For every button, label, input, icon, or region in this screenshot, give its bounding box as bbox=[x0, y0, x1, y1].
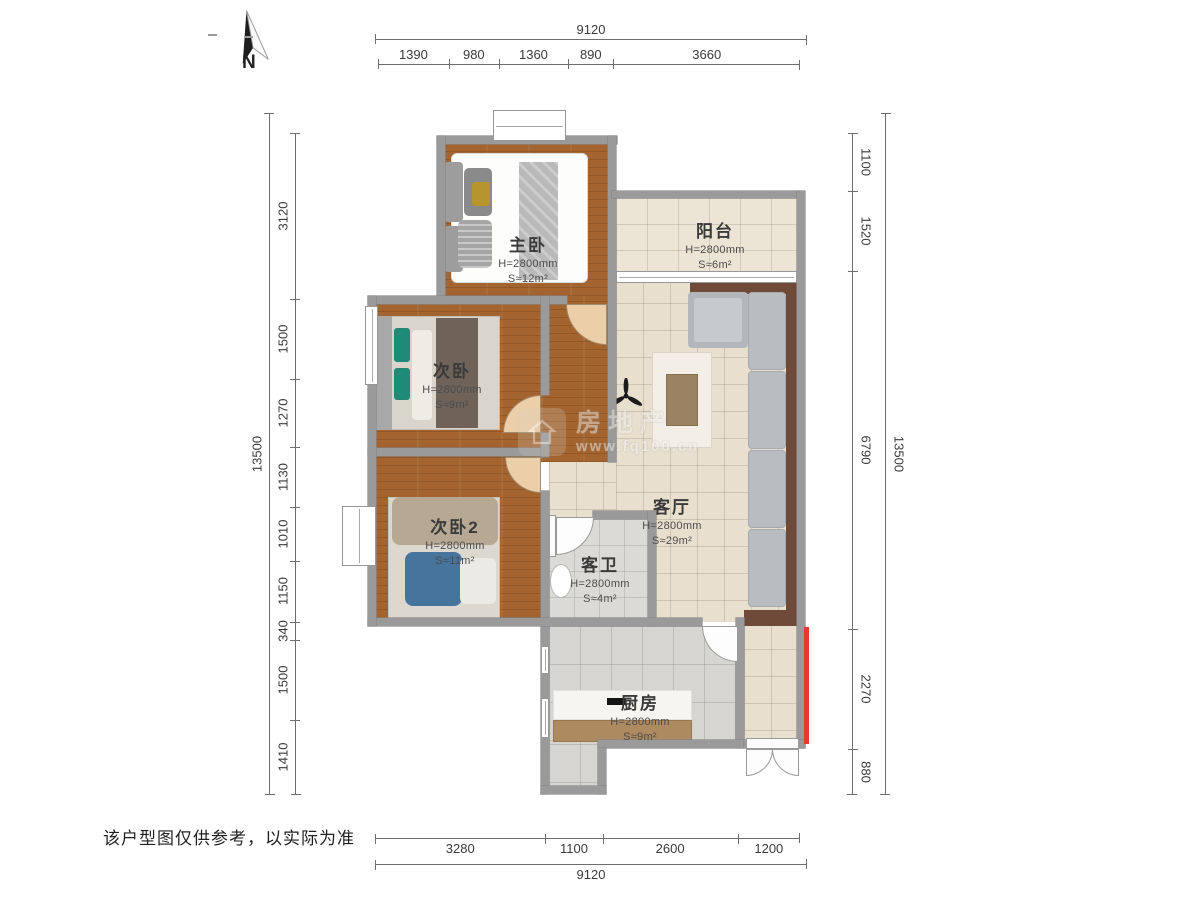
wall-red-accent bbox=[804, 627, 809, 744]
dim-chain-left-outer: 13500 bbox=[244, 113, 270, 795]
dim-label: 9120 bbox=[375, 22, 807, 37]
room-area: S≈4m² bbox=[530, 592, 670, 607]
dim-segment: 340 bbox=[270, 622, 296, 640]
room-label-master: 主卧 H=2800mm S≈12m² bbox=[458, 234, 598, 287]
dim-chain-right-outer: 13500 bbox=[885, 113, 911, 795]
dim-segment: 3280 bbox=[375, 838, 545, 856]
dim-label: 980 bbox=[449, 47, 499, 62]
dim-label: 1520 bbox=[858, 217, 873, 246]
dim-label: 1100 bbox=[858, 148, 873, 176]
dim-label: 1410 bbox=[275, 743, 290, 772]
kitchen-ext-floor bbox=[549, 744, 598, 786]
room-height: H=2800mm bbox=[382, 383, 522, 398]
dim-segment: 1270 bbox=[270, 379, 296, 447]
dim-label: 1130 bbox=[275, 463, 290, 491]
dim-segment: 9120 bbox=[375, 22, 807, 40]
dim-segment: 1500 bbox=[270, 640, 296, 720]
room-label-balcony: 阳台 H=2800mm S≈6m² bbox=[645, 220, 785, 273]
master-pillow-yellow bbox=[472, 182, 490, 206]
dim-segment: 2600 bbox=[603, 838, 738, 856]
room-label-living: 客厅 H=2800mm S≈29m² bbox=[602, 496, 742, 549]
entry-door-frame bbox=[746, 738, 799, 749]
dim-label: 13500 bbox=[891, 436, 906, 472]
master-window bbox=[493, 110, 566, 141]
kitchen-window-2 bbox=[541, 698, 549, 738]
wall-master-left bbox=[437, 136, 445, 304]
north-dash-left bbox=[208, 34, 217, 36]
dim-segment: 13500 bbox=[885, 113, 911, 795]
room-name: 次卧2 bbox=[385, 516, 525, 539]
kitchen-window-1 bbox=[541, 646, 549, 674]
room-height: H=2800mm bbox=[572, 715, 708, 730]
dim-label: 890 bbox=[568, 47, 613, 62]
wall-ext-bottom bbox=[541, 786, 606, 794]
dim-segment: 890 bbox=[568, 47, 613, 65]
room-area: S≈9m² bbox=[382, 398, 522, 413]
sofa-cushion-1 bbox=[748, 292, 786, 370]
entry-door-arc-right bbox=[772, 749, 799, 776]
sofa-chaise-cushion bbox=[694, 298, 742, 342]
bath-door-leaf bbox=[549, 515, 556, 557]
dim-segment: 3120 bbox=[270, 133, 296, 299]
dim-segment: 880 bbox=[852, 749, 878, 795]
room-label-kitchen: 厨房 H=2800mm S≈9m² bbox=[572, 692, 708, 745]
wall-bedroom2-top bbox=[368, 296, 567, 304]
sofa-base-bottom bbox=[744, 610, 798, 626]
dim-chain-top-inner: 139098013608903660 bbox=[378, 47, 800, 65]
dim-label: 9120 bbox=[375, 867, 807, 882]
dim-segment: 1390 bbox=[378, 47, 449, 65]
dim-chain-right-inner: 1100152067902270880 bbox=[852, 133, 878, 795]
dim-label: 1360 bbox=[499, 47, 568, 62]
room-name: 客厅 bbox=[602, 496, 742, 519]
dim-label: 1100 bbox=[545, 841, 602, 856]
room-area: S≈29m² bbox=[602, 534, 742, 549]
dim-segment: 1130 bbox=[270, 447, 296, 507]
dim-label: 3120 bbox=[275, 202, 290, 231]
disclaimer-text: 该户型图仅供参考，以实际为准 bbox=[103, 824, 355, 849]
room-label-bedroom3: 次卧2 H=2800mm S≈11m² bbox=[385, 516, 525, 569]
dim-label: 6790 bbox=[858, 436, 873, 465]
north-label: N bbox=[242, 52, 256, 74]
wall-central-seg3 bbox=[541, 491, 549, 794]
dim-label: 1390 bbox=[378, 47, 449, 62]
room-height: H=2800mm bbox=[530, 577, 670, 592]
wall-balcony-top bbox=[612, 191, 800, 198]
dim-segment: 1100 bbox=[852, 133, 878, 191]
room-area: S≈9m² bbox=[572, 730, 708, 745]
bedroom3-window bbox=[342, 506, 376, 566]
dim-label: 880 bbox=[858, 761, 873, 783]
dim-segment: 980 bbox=[449, 47, 499, 65]
room-area: S≈11m² bbox=[385, 554, 525, 569]
dim-label: 13500 bbox=[249, 436, 264, 472]
north-dash-right bbox=[244, 36, 253, 38]
dim-label: 1270 bbox=[275, 398, 290, 427]
wall-kitchen-top bbox=[368, 618, 702, 626]
dim-segment: 1100 bbox=[545, 838, 602, 856]
dim-segment: 1150 bbox=[270, 561, 296, 622]
room-height: H=2800mm bbox=[458, 257, 598, 272]
wall-central-seg2 bbox=[541, 433, 549, 457]
dim-label: 1500 bbox=[275, 666, 290, 695]
dim-segment: 3660 bbox=[613, 47, 800, 65]
dim-label: 1010 bbox=[275, 519, 290, 548]
entry-floor bbox=[744, 622, 797, 744]
room-area: S≈6m² bbox=[645, 258, 785, 273]
sofa-cushion-2 bbox=[748, 371, 786, 449]
room-height: H=2800mm bbox=[645, 243, 785, 258]
north-arrow: N bbox=[228, 8, 288, 80]
sofa-cushion-3 bbox=[748, 450, 786, 528]
dim-chain-left-inner: 31201500127011301010115034015001410 bbox=[270, 133, 296, 795]
wall-bedroom2-bottom bbox=[368, 448, 543, 456]
dim-segment: 1010 bbox=[270, 507, 296, 561]
room-label-bath: 客卫 H=2800mm S≈4m² bbox=[530, 554, 670, 607]
sofa-cushion-4 bbox=[748, 529, 786, 607]
wall-center-vertical bbox=[608, 136, 616, 462]
dim-chain-bottom-inner: 3280110026001200 bbox=[375, 838, 800, 856]
dim-segment: 6790 bbox=[852, 271, 878, 629]
dim-label: 1200 bbox=[738, 841, 800, 856]
bedroom2-window bbox=[365, 306, 378, 385]
floorplan-canvas: N 9120 139098013608903660 32801100260012… bbox=[0, 0, 1200, 900]
dim-segment: 1410 bbox=[270, 720, 296, 795]
wall-central-seg1 bbox=[541, 296, 549, 395]
dim-segment: 2270 bbox=[852, 629, 878, 749]
dim-segment: 1500 bbox=[270, 299, 296, 379]
room-name: 次卧 bbox=[382, 360, 522, 383]
dim-chain-top-outer: 9120 bbox=[375, 22, 807, 40]
dim-label: 3660 bbox=[613, 47, 800, 62]
master-nightstand-top bbox=[444, 162, 463, 222]
dim-label: 2270 bbox=[858, 674, 873, 703]
room-height: H=2800mm bbox=[385, 539, 525, 554]
room-area: S≈12m² bbox=[458, 272, 598, 287]
room-name: 厨房 bbox=[572, 692, 708, 715]
dim-segment: 1200 bbox=[738, 838, 800, 856]
dim-segment: 13500 bbox=[244, 113, 270, 795]
bedroom2-pillow-teal-1 bbox=[394, 328, 410, 362]
dim-label: 340 bbox=[275, 620, 290, 642]
dim-segment: 9120 bbox=[375, 864, 807, 882]
dim-label: 2600 bbox=[603, 841, 738, 856]
coffee-table bbox=[666, 374, 698, 426]
room-name: 主卧 bbox=[458, 234, 598, 257]
room-height: H=2800mm bbox=[602, 519, 742, 534]
dim-label: 1500 bbox=[275, 325, 290, 354]
room-label-bedroom2: 次卧 H=2800mm S≈9m² bbox=[382, 360, 522, 413]
entry-door-arc-left bbox=[746, 749, 773, 776]
dim-chain-bottom-outer: 9120 bbox=[375, 864, 807, 882]
dim-label: 3280 bbox=[375, 841, 545, 856]
room-name: 客卫 bbox=[530, 554, 670, 577]
dim-segment: 1360 bbox=[499, 47, 568, 65]
room-name: 阳台 bbox=[645, 220, 785, 243]
dim-label: 1150 bbox=[275, 577, 290, 605]
dim-segment: 1520 bbox=[852, 191, 878, 271]
